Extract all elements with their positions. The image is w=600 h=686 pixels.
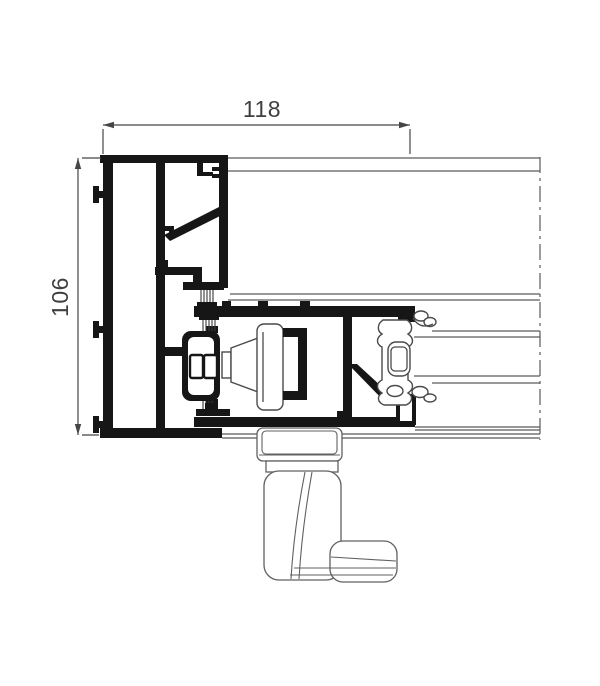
brush-seal-bottom [196,401,230,416]
technical-drawing-canvas: 118 106 [0,0,600,686]
keeper-roller-right [204,355,217,378]
dimension-height-label: 106 [47,277,73,317]
dimension-width-label: 118 [243,96,281,122]
dimension-height: 106 [47,158,101,435]
cross-section-drawing: 118 106 [0,0,600,686]
dimension-width: 118 [103,96,410,154]
keeper-roller-left [190,355,203,378]
door-handle [257,428,397,582]
lock-clamp [283,328,307,400]
brush-seal-top [197,290,217,306]
lock-keeper [182,326,220,406]
lock-cylinder [222,324,283,410]
